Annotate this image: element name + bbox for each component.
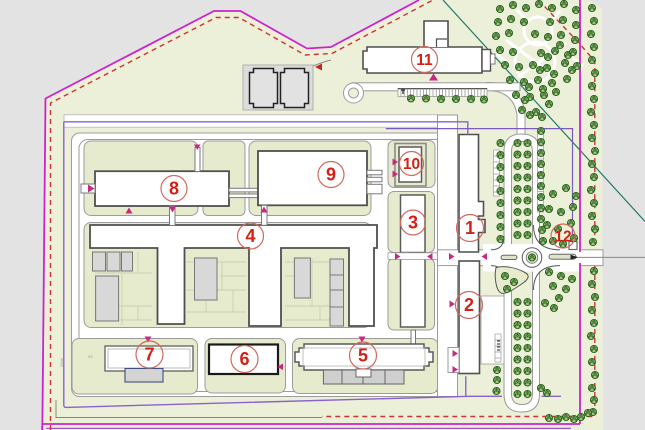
svg-text:3: 3 (408, 213, 418, 233)
svg-text:3906: 3906 (59, 357, 64, 367)
svg-text:1: 1 (465, 218, 475, 238)
svg-text:8: 8 (169, 179, 179, 199)
svg-text:2: 2 (464, 295, 474, 315)
svg-text:93: 93 (88, 354, 93, 359)
svg-text:12: 12 (554, 229, 571, 246)
svg-text:4: 4 (245, 226, 255, 246)
svg-text:9: 9 (326, 165, 336, 185)
svg-text:11: 11 (416, 52, 433, 69)
svg-text:5: 5 (358, 346, 368, 366)
svg-text:7: 7 (144, 345, 154, 365)
svg-text:6: 6 (239, 349, 249, 369)
svg-text:10: 10 (403, 156, 420, 173)
